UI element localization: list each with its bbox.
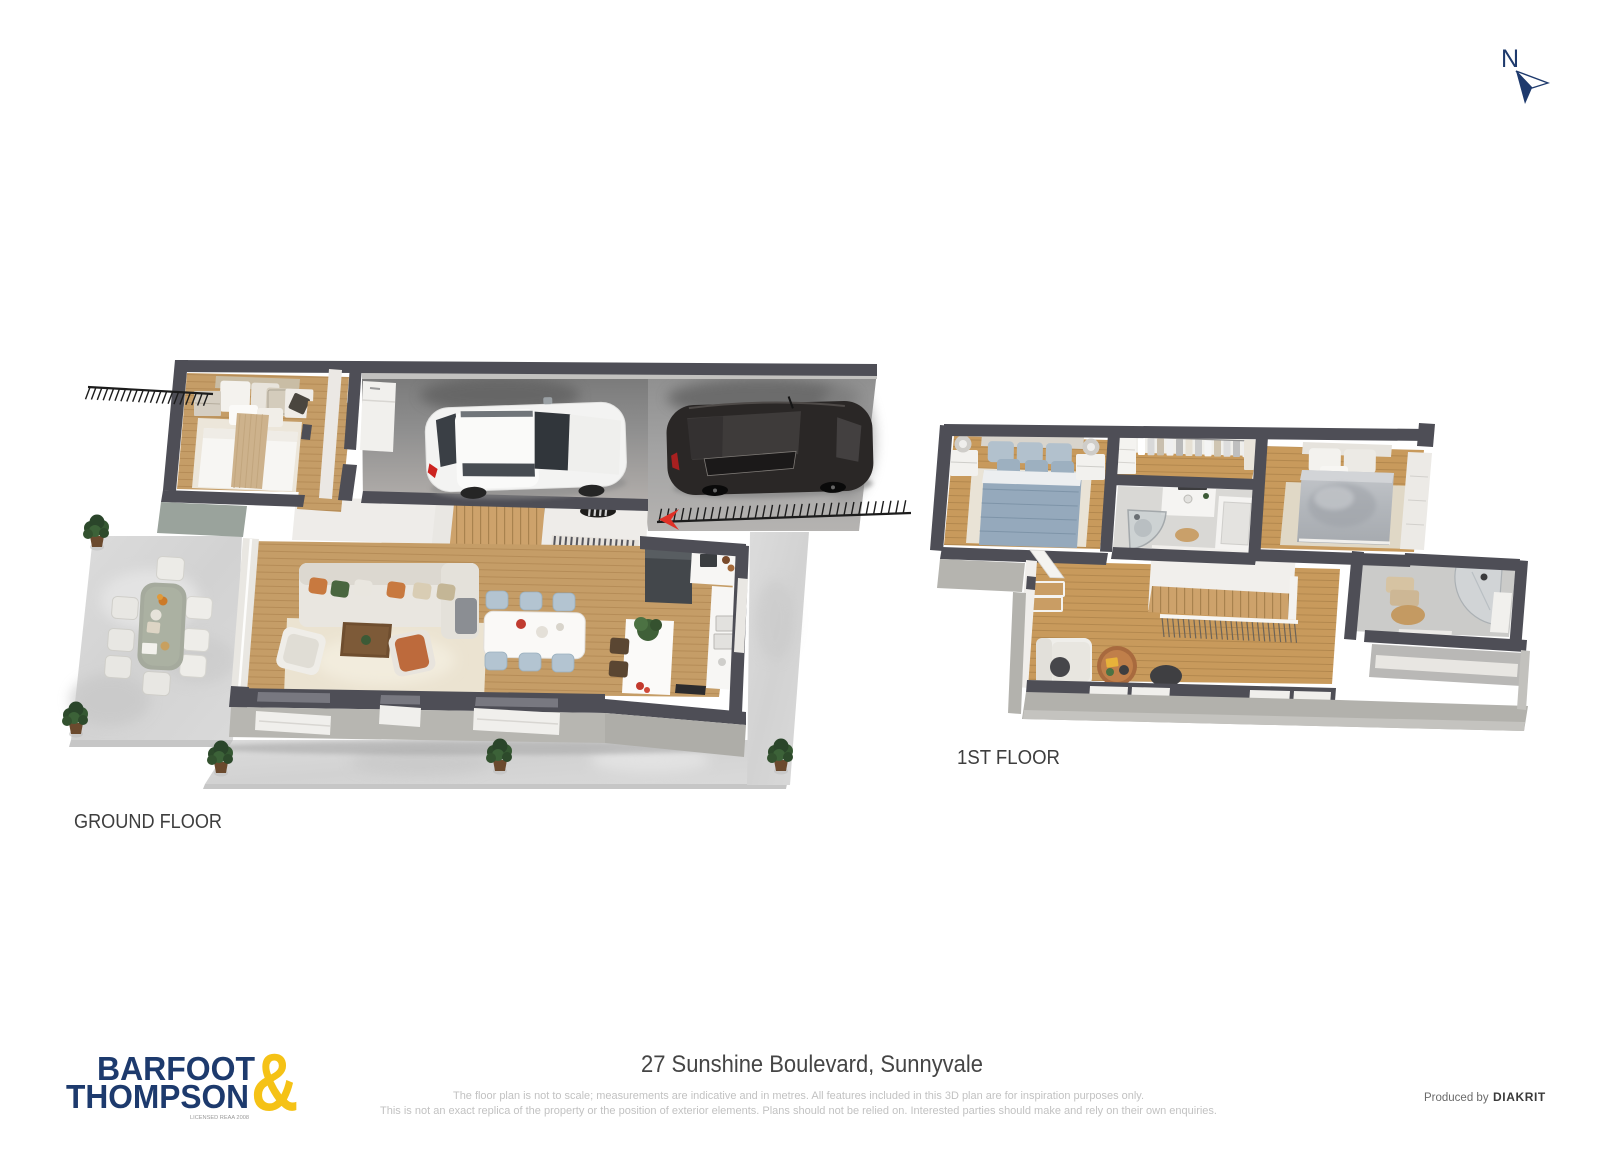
svg-text:N: N bbox=[1501, 45, 1519, 73]
svg-text:Produced by: Produced by bbox=[1424, 1092, 1489, 1104]
svg-text:&: & bbox=[251, 1036, 298, 1128]
svg-text:1ST FLOOR: 1ST FLOOR bbox=[957, 747, 1060, 769]
svg-text:THOMPSON: THOMPSON bbox=[66, 1078, 249, 1115]
svg-text:The floor plan is not to scale: The floor plan is not to scale; measurem… bbox=[453, 1090, 1144, 1102]
svg-text:LICENSED REAA 2008: LICENSED REAA 2008 bbox=[190, 1115, 249, 1121]
svg-text:GROUND FLOOR: GROUND FLOOR bbox=[74, 811, 222, 833]
svg-text:This is not an exact replica o: This is not an exact replica of the prop… bbox=[380, 1105, 1217, 1117]
svg-text:27 Sunshine Boulevard, Sunnyva: 27 Sunshine Boulevard, Sunnyvale bbox=[641, 1052, 983, 1078]
svg-text:DIAKRIT: DIAKRIT bbox=[1493, 1090, 1546, 1104]
